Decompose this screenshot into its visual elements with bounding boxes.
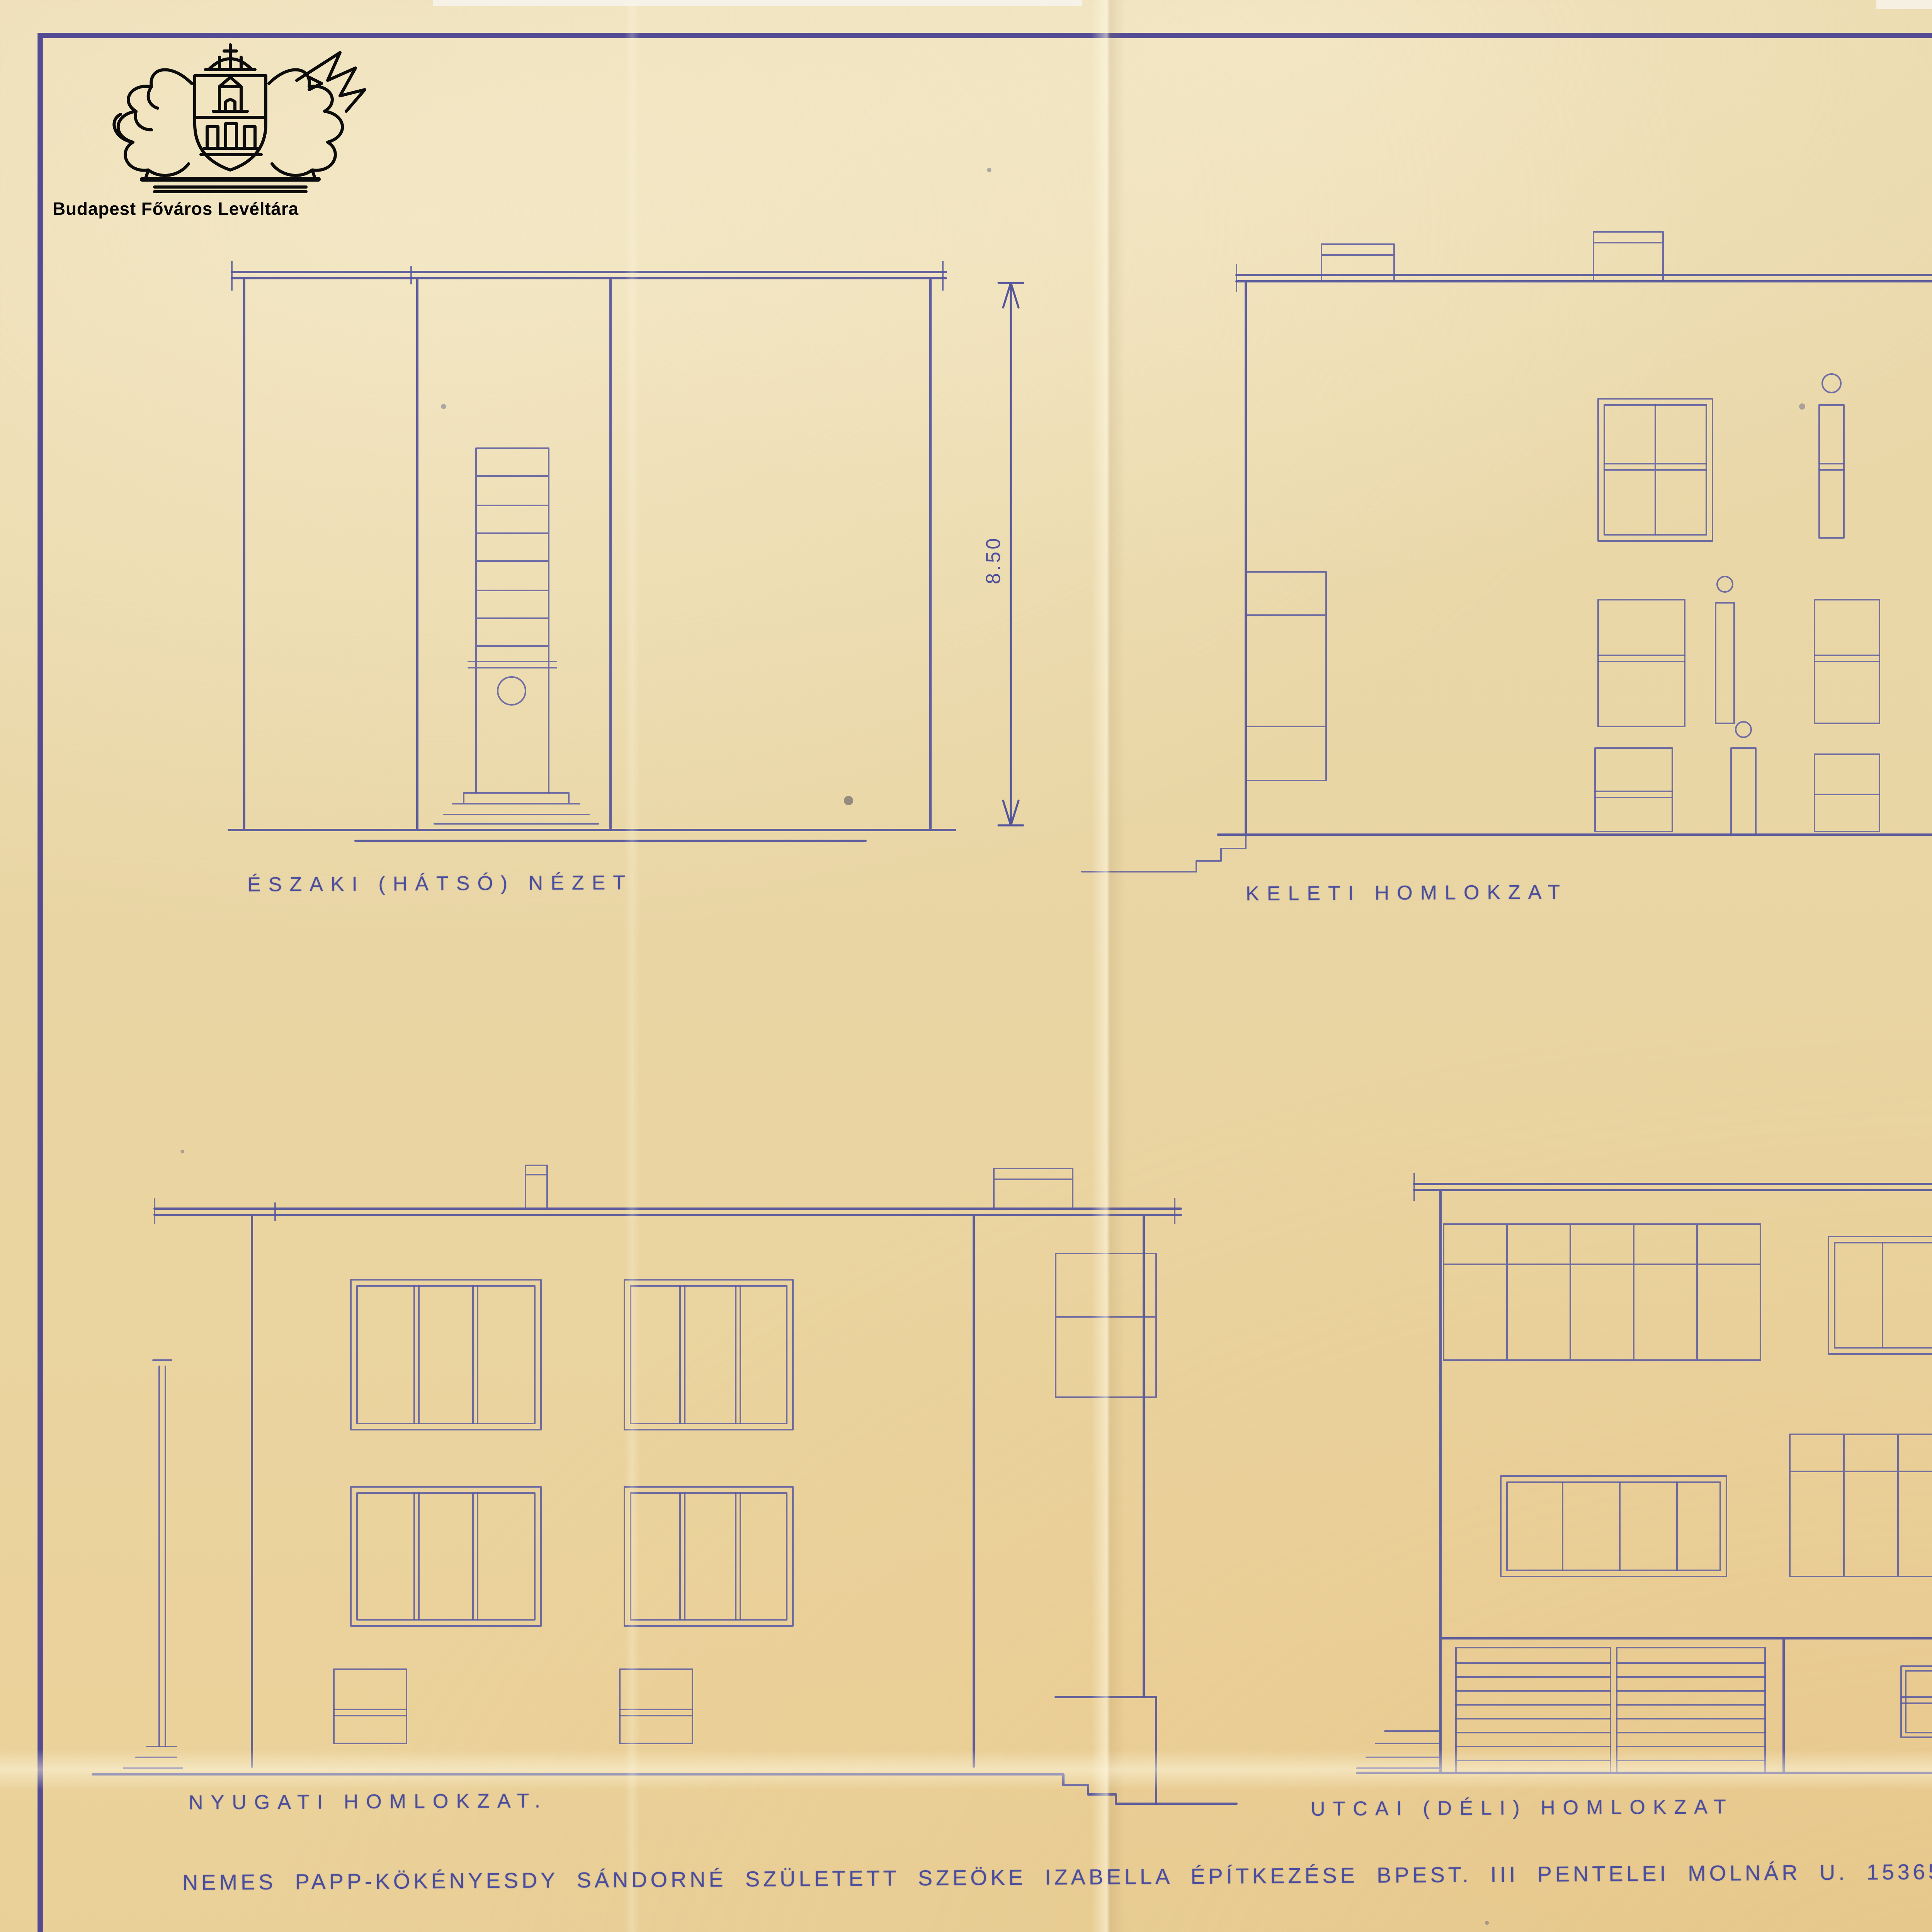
elevation-west-facade [93,1165,1236,1804]
east-windows [1595,374,1932,835]
dimension-8-50: 8.50 [982,283,1023,825]
scan-edge-top [433,0,1082,6]
porthole-window [498,677,526,705]
west-windows [334,1280,793,1743]
elevation-south-street-facade: 9,20 [1357,1173,1932,1773]
budapest-coat-of-arms-icon [53,43,411,198]
chimneys [526,1165,1073,1209]
fold-crease-horizontal [0,1750,1932,1790]
drawing-layer: 8.50 [0,0,1932,1932]
elevation-east-facade [1082,232,1932,872]
archive-name: Budapest Főváros Levéltára [53,201,411,219]
blueprint-sheet: 8.50 [0,0,1932,1932]
archive-stamp: Budapest Főváros Levéltára [53,43,411,219]
label-west-elevation: NYUGATI HOMLOKZAT. [189,1789,548,1814]
stair-annex [1246,572,1326,781]
chimneys [1321,232,1932,281]
south-windows [1444,1224,1932,1577]
scan-edge-top-right [1876,0,1932,9]
fold-crease-left [624,0,640,1932]
label-north-elevation: ÉSZAKI (HÁTSÓ) NÉZET [247,871,633,896]
fold-crease-center [1091,0,1125,1932]
label-east-elevation: KELETI HOMLOKZAT [1246,880,1568,905]
paper-specks [180,168,1932,1932]
dimension-label-north: 8.50 [982,536,1005,584]
label-south-elevation: UTCAI (DÉLI) HOMLOKZAT [1311,1795,1734,1820]
downpipe [153,1360,172,1747]
